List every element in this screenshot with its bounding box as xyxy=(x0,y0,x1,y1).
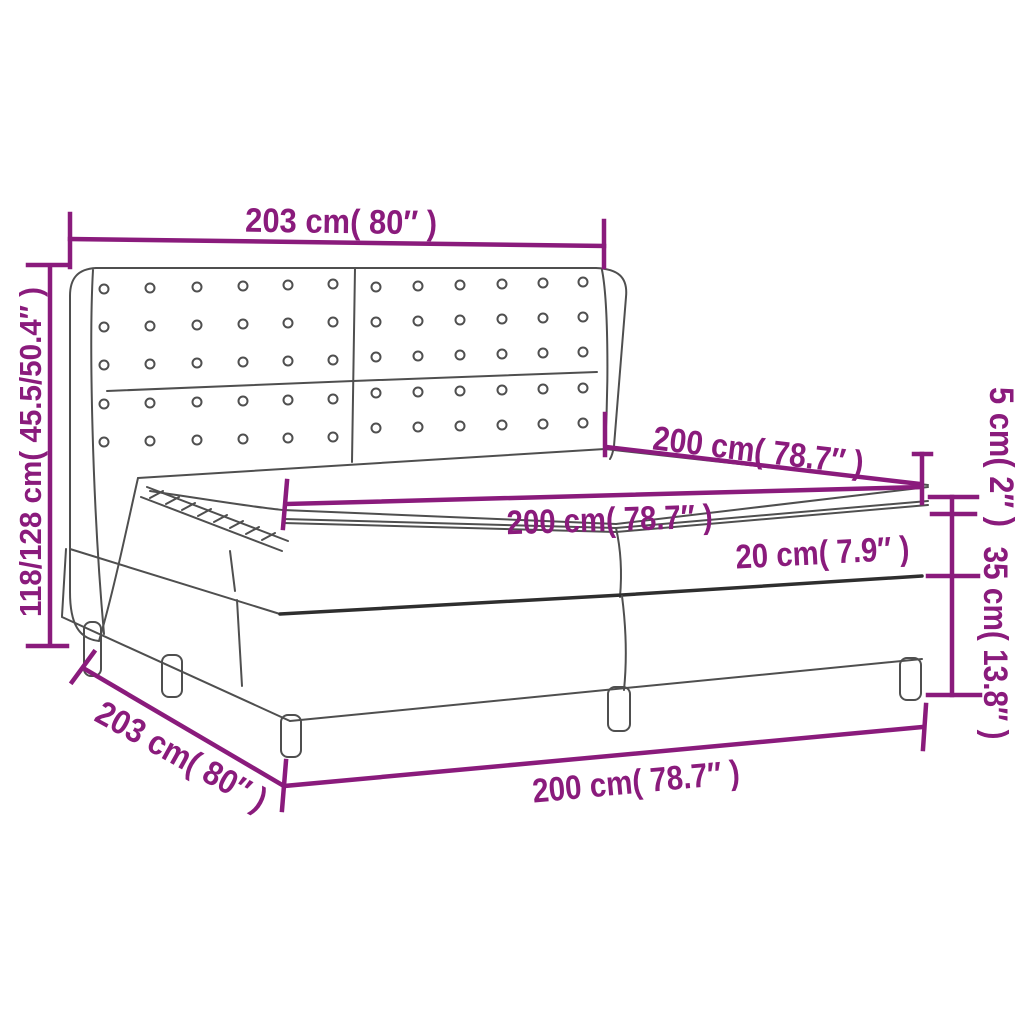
dim-label-mattress-width: 200 cm( 78.7″ ) xyxy=(506,498,713,542)
dim-base-width: 200 cm( 78.7″ ) xyxy=(282,705,926,811)
headboard xyxy=(70,268,626,641)
leg xyxy=(608,687,630,731)
dim-label-depth: 200 cm( 78.7″ ) xyxy=(651,419,866,482)
bed-drawing xyxy=(62,268,928,757)
leg xyxy=(162,655,182,697)
dim-label-mattress-thickness: 20 cm( 7.9″ ) xyxy=(735,529,911,576)
dim-label-topper-thickness: 5 cm( 2″ ) xyxy=(982,387,1020,527)
dim-label-frame-depth: 203 cm( 80″ ) xyxy=(89,694,274,819)
dim-total-height: 118/128 cm( 45.5/50.4″ ) xyxy=(13,265,67,646)
dim-right-bracket: 5 cm( 2″ ) 35 cm( 13.8″ ) xyxy=(928,387,1020,740)
dim-mattress-thickness: 20 cm( 7.9″ ) xyxy=(735,529,911,576)
dim-label-headboard-width: 203 cm( 80″ ) xyxy=(245,202,438,243)
product-dimension-diagram: 203 cm( 80″ ) 118/128 cm( 45.5/50.4″ ) 2… xyxy=(0,0,1024,1024)
tufting-buttons xyxy=(100,278,588,447)
box-spring-base xyxy=(62,549,922,721)
diagram-svg: 203 cm( 80″ ) 118/128 cm( 45.5/50.4″ ) 2… xyxy=(0,0,1024,1024)
dim-label-total-height: 118/128 cm( 45.5/50.4″ ) xyxy=(13,287,48,617)
dim-headboard-width: 203 cm( 80″ ) xyxy=(70,202,604,267)
dim-frame-depth: 203 cm( 80″ ) xyxy=(72,652,284,819)
leg xyxy=(900,658,921,700)
dim-label-base-height: 35 cm( 13.8″ ) xyxy=(976,547,1014,740)
